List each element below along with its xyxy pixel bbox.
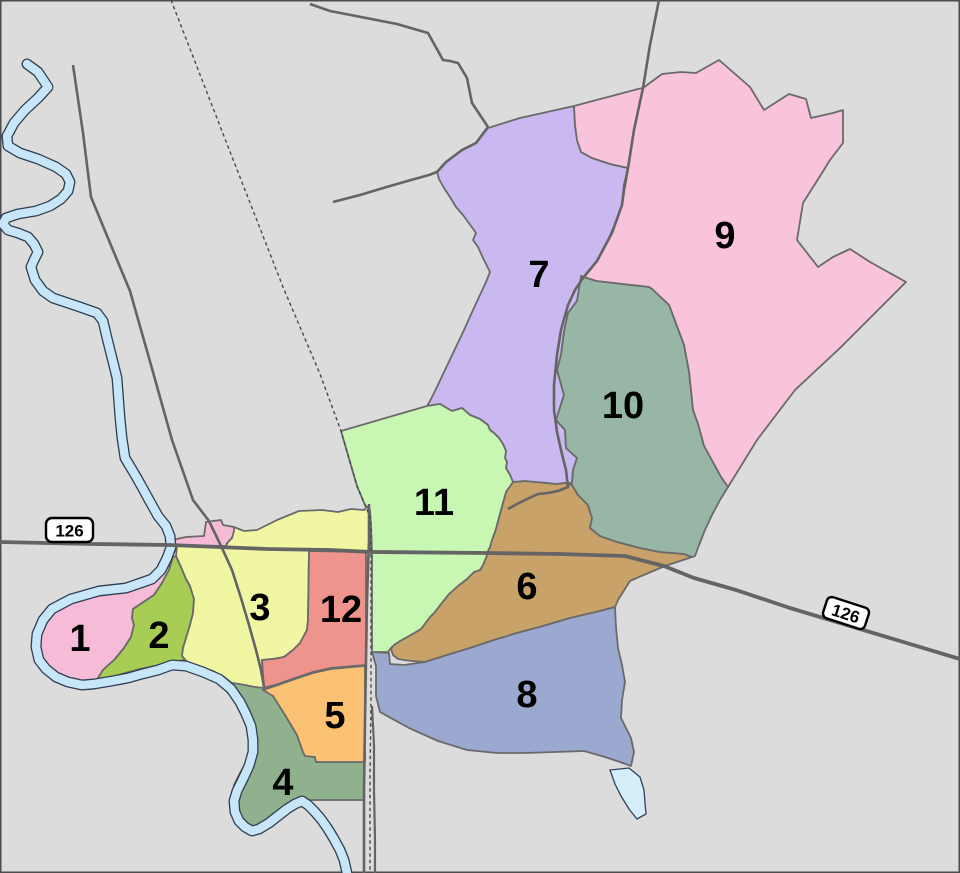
svg-text:6: 6 [516,566,537,608]
svg-text:11: 11 [414,482,454,524]
svg-text:1: 1 [69,618,90,660]
svg-text:3: 3 [249,587,270,629]
svg-text:10: 10 [602,385,644,427]
svg-text:5: 5 [324,695,345,737]
svg-text:2: 2 [148,615,169,657]
svg-text:4: 4 [272,762,293,804]
svg-text:9: 9 [714,215,735,257]
svg-text:12: 12 [320,589,362,631]
svg-text:126: 126 [55,522,83,541]
svg-text:8: 8 [516,674,537,716]
svg-text:7: 7 [528,254,549,296]
